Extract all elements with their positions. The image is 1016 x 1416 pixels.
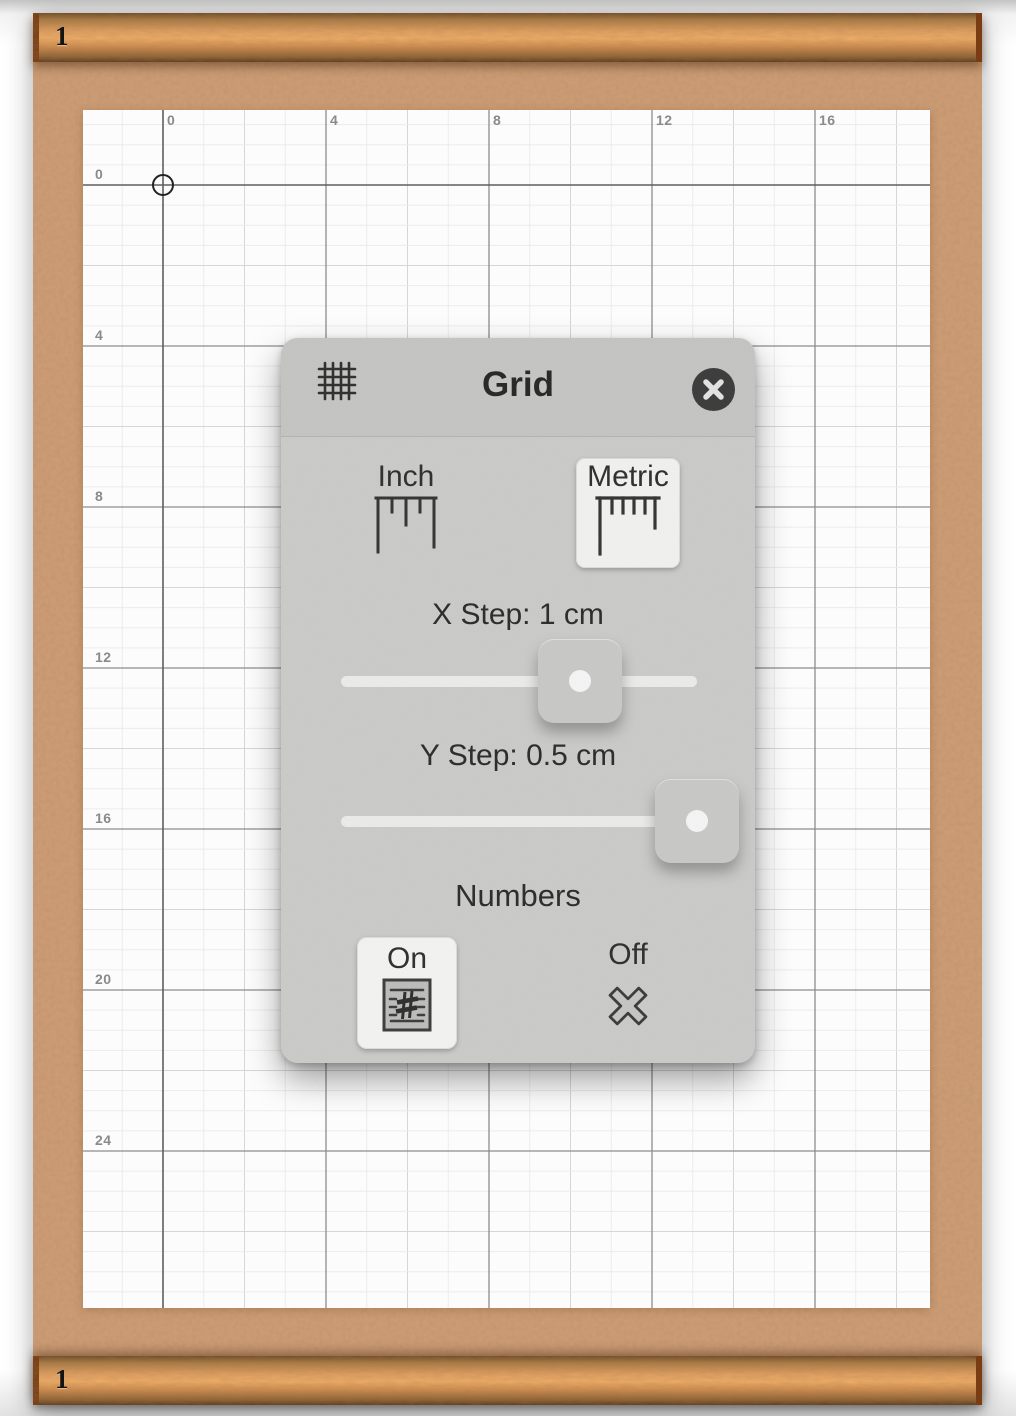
y-slider-track[interactable]	[341, 816, 697, 827]
x-step-slider[interactable]	[341, 639, 697, 723]
grid-dialog: Grid Inch	[281, 338, 755, 1063]
axis-label: 8	[493, 112, 501, 128]
axis-label: 8	[95, 488, 103, 504]
numbers-off-option[interactable]: Off	[578, 937, 678, 1049]
origin-point-marker[interactable]	[152, 174, 174, 196]
axis-label: 24	[95, 1132, 112, 1148]
axis-label: 16	[95, 810, 112, 826]
x-slider-track[interactable]	[341, 676, 697, 687]
thumb-dot	[569, 670, 591, 692]
wood-texture	[33, 13, 982, 62]
inch-label: Inch	[378, 460, 435, 494]
axis-label: 0	[167, 112, 175, 128]
numbers-on-icon	[381, 977, 433, 1033]
unit-option-inch[interactable]: Inch	[354, 458, 458, 568]
unit-option-metric[interactable]: Metric	[576, 458, 680, 568]
axis-label: 0	[95, 166, 103, 182]
x-step-label: X Step: 1 cm	[281, 598, 755, 632]
axis-label: 12	[95, 649, 112, 665]
axis-label: 12	[656, 112, 673, 128]
axis-label: 20	[95, 971, 112, 987]
metric-label: Metric	[587, 460, 669, 494]
cross-icon	[604, 982, 652, 1030]
numbers-off-label: Off	[608, 937, 647, 973]
axis-label: 4	[330, 112, 338, 128]
wood-texture	[33, 1356, 982, 1405]
inch-ruler-icon	[374, 494, 438, 554]
thumb-dot	[686, 810, 708, 832]
bottom-scroll-rod: 1	[33, 1356, 982, 1405]
top-scroll-rod: 1	[33, 13, 982, 62]
metric-ruler-icon	[595, 494, 661, 556]
page-number-bottom: 1	[55, 1364, 69, 1395]
axis-label: 16	[819, 112, 836, 128]
numbers-heading: Numbers	[281, 878, 755, 914]
y-step-label: Y Step: 0.5 cm	[281, 739, 755, 773]
numbers-on-label: On	[387, 941, 427, 977]
close-x-icon	[692, 368, 735, 411]
close-button[interactable]	[692, 368, 735, 411]
dialog-header: Grid	[281, 338, 755, 437]
y-step-slider[interactable]	[341, 779, 697, 863]
axis-label: 4	[95, 327, 103, 343]
dialog-title: Grid	[281, 365, 755, 405]
app-canvas: 048121604812162024 1 1 Grid	[0, 0, 1016, 1416]
y-slider-thumb[interactable]	[655, 779, 739, 863]
x-slider-thumb[interactable]	[538, 639, 622, 723]
dialog-body: Inch Metric	[281, 438, 755, 1063]
page-number-top: 1	[55, 21, 69, 52]
numbers-on-option[interactable]: On	[357, 937, 457, 1049]
